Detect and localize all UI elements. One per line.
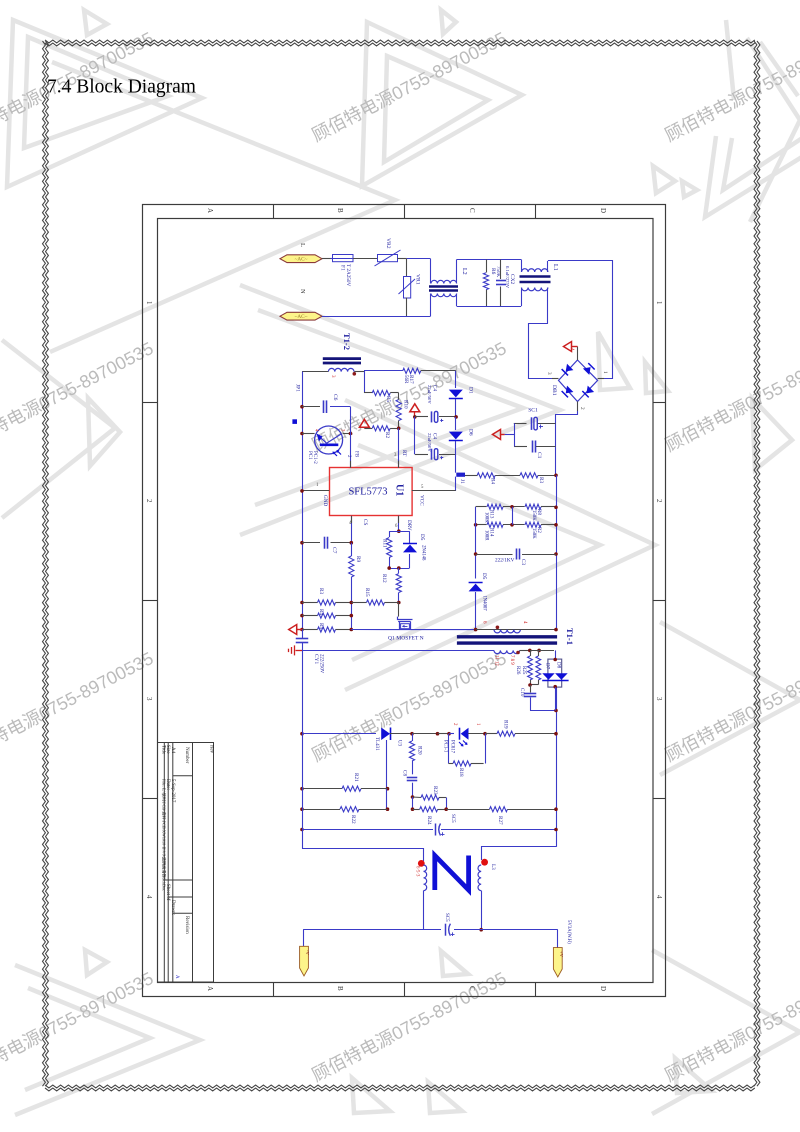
- svg-text:VR2: VR2: [385, 238, 391, 249]
- svg-text:SC1: SC1: [528, 408, 538, 414]
- svg-text:5V3A(W.H): 5V3A(W.H): [566, 920, 571, 944]
- svg-text:R5: R5: [385, 396, 391, 402]
- svg-text:3: 3: [655, 697, 663, 701]
- svg-text:7.4 Block Diagram: 7.4 Block Diagram: [47, 77, 196, 98]
- svg-text:FB: FB: [354, 451, 359, 458]
- svg-text:A: A: [206, 208, 214, 213]
- svg-text:RT: RT: [401, 450, 407, 457]
- svg-text:A: A: [206, 986, 214, 991]
- svg-text:R25: R25: [521, 666, 526, 675]
- svg-text:PC1-2: PC1-2: [312, 451, 317, 464]
- svg-text:150K: 150K: [531, 510, 536, 521]
- svg-text:VR1: VR1: [415, 274, 421, 285]
- svg-text:R27: R27: [497, 816, 503, 825]
- svg-text:1: 1: [655, 301, 663, 305]
- svg-text:Title: Title: [160, 745, 165, 755]
- svg-text:C: C: [468, 986, 476, 991]
- svg-text:T1-1: T1-1: [565, 628, 575, 645]
- svg-text:L1: L1: [552, 264, 558, 271]
- svg-text:Size: Size: [165, 745, 170, 754]
- svg-text:C6: C6: [332, 394, 338, 401]
- svg-text:22uF/50V: 22uF/50V: [427, 433, 432, 452]
- svg-text:R20: R20: [417, 746, 423, 755]
- svg-text:Rev: Rev: [209, 745, 214, 754]
- svg-text:U3: U3: [397, 740, 402, 747]
- svg-text:222/250V: 222/250V: [319, 654, 324, 674]
- svg-text:6·5·3: 6·5·3: [415, 866, 420, 877]
- svg-text:SC5: SC5: [450, 814, 455, 823]
- svg-text:D1: D1: [468, 387, 474, 394]
- svg-text:U1: U1: [394, 484, 405, 496]
- svg-text:R11: R11: [382, 539, 388, 548]
- svg-text:4: 4: [655, 895, 663, 899]
- svg-text:100R: 100R: [484, 530, 489, 541]
- svg-text:Q1 MOSFET N: Q1 MOSFET N: [388, 636, 424, 642]
- svg-text:2N4148: 2N4148: [421, 545, 426, 561]
- svg-text:R3: R3: [538, 477, 544, 483]
- svg-text:11 12: 11 12: [494, 655, 499, 666]
- svg-text:C10: C10: [519, 688, 524, 697]
- svg-text:+V: +V: [559, 951, 564, 958]
- svg-text:R21: R21: [353, 773, 359, 782]
- svg-text:L: L: [299, 243, 306, 247]
- svg-text:B: B: [336, 986, 344, 991]
- svg-text:B: B: [336, 208, 344, 213]
- svg-text:5-Sep-2017: 5-Sep-2017: [170, 779, 175, 803]
- svg-text:R4: R4: [318, 609, 324, 615]
- svg-text:D5: D5: [481, 573, 487, 580]
- svg-text:1: 1: [145, 301, 153, 305]
- svg-text:L2: L2: [461, 268, 467, 275]
- svg-text:D8: D8: [556, 662, 561, 669]
- svg-text:R19: R19: [503, 720, 509, 729]
- svg-text:VCC: VCC: [419, 495, 425, 506]
- svg-text:2: 2: [579, 407, 585, 410]
- svg-text:R24: R24: [426, 816, 432, 825]
- svg-text:Revision: Revision: [184, 916, 189, 934]
- svg-text:PC1: PC1: [307, 451, 312, 460]
- svg-text:C3: C3: [520, 559, 526, 565]
- svg-text:R5: R5: [318, 623, 324, 629]
- svg-text:R2: R2: [384, 432, 390, 438]
- svg-text:R9: R9: [355, 556, 361, 562]
- svg-text:3: 3: [546, 372, 552, 375]
- svg-text:2: 2: [145, 499, 153, 503]
- svg-text:R15: R15: [364, 588, 370, 597]
- svg-text:R23: R23: [432, 786, 438, 795]
- svg-text:CY1: CY1: [313, 654, 319, 664]
- svg-text:~AC~: ~AC~: [295, 257, 308, 263]
- svg-text:7 8 9: 7 8 9: [509, 655, 514, 665]
- svg-text:C7: C7: [331, 547, 337, 554]
- svg-text:D: D: [599, 208, 607, 213]
- svg-text:DRV: DRV: [406, 520, 412, 531]
- svg-text:TL431: TL431: [374, 737, 379, 751]
- svg-text:A: A: [174, 975, 179, 979]
- svg-text:4: 4: [145, 895, 153, 899]
- svg-text:56R: 56R: [403, 375, 408, 384]
- svg-text:22uF/50V: 22uF/50V: [427, 385, 432, 404]
- svg-text:D: D: [599, 986, 607, 991]
- svg-text:150K: 150K: [531, 528, 536, 539]
- svg-text:Drawn:: Drawn:: [170, 900, 175, 915]
- svg-text:C: C: [468, 208, 476, 213]
- svg-text:L3: L3: [490, 864, 496, 870]
- svg-text:~AC~: ~AC~: [295, 314, 308, 320]
- svg-text:J1: J1: [459, 479, 465, 484]
- svg-text:R26: R26: [515, 666, 520, 675]
- svg-text:R18: R18: [458, 768, 464, 777]
- svg-text:2: 2: [655, 499, 663, 503]
- svg-text:1: 1: [602, 371, 608, 374]
- svg-text:222/1KV: 222/1KV: [495, 558, 515, 564]
- svg-text:N: N: [299, 289, 306, 294]
- svg-text:R12: R12: [381, 574, 387, 583]
- svg-text:SFL5773: SFL5773: [348, 487, 387, 498]
- svg-text:-V: -V: [305, 950, 310, 956]
- svg-text:0.1uF/275V: 0.1uF/275V: [505, 266, 510, 289]
- svg-text:PC1-1: PC1-1: [443, 740, 448, 753]
- svg-text:D5: D5: [419, 534, 425, 541]
- svg-text:T 2A250V: T 2A250V: [345, 264, 351, 286]
- svg-text:R4: R4: [490, 478, 496, 484]
- svg-text:A4: A4: [170, 747, 175, 754]
- svg-text:PC817: PC817: [450, 740, 455, 754]
- svg-text:T1-2: T1-2: [342, 333, 352, 350]
- svg-text:JP1: JP1: [295, 384, 301, 392]
- svg-text:SC5: SC5: [444, 913, 449, 922]
- svg-text:750K: 750K: [495, 266, 500, 278]
- svg-text:D7: D7: [545, 663, 550, 670]
- svg-text:Number: Number: [184, 747, 189, 764]
- svg-text:R22: R22: [350, 815, 356, 824]
- svg-text:D6: D6: [468, 429, 474, 436]
- svg-text:Sheet of: Sheet of: [165, 884, 170, 901]
- svg-text:C8: C8: [402, 770, 408, 776]
- svg-text:F1: F1: [340, 265, 346, 271]
- svg-text:GND: GND: [322, 495, 328, 506]
- svg-text:C1: C1: [536, 452, 542, 459]
- svg-text:IN4007: IN4007: [482, 596, 487, 611]
- svg-text:DB1: DB1: [551, 385, 557, 396]
- svg-text:R3: R3: [318, 588, 324, 594]
- svg-text:R10: R10: [403, 400, 409, 409]
- svg-text:CS: CS: [362, 519, 368, 525]
- svg-text:3: 3: [145, 697, 153, 701]
- svg-text:File: E:\信利\PCB\资料\PCB\XW1010-: File: E:\信利\PCB\资料\PCB\XW1010-B\V0\蓝狮高清狮…: [160, 779, 167, 891]
